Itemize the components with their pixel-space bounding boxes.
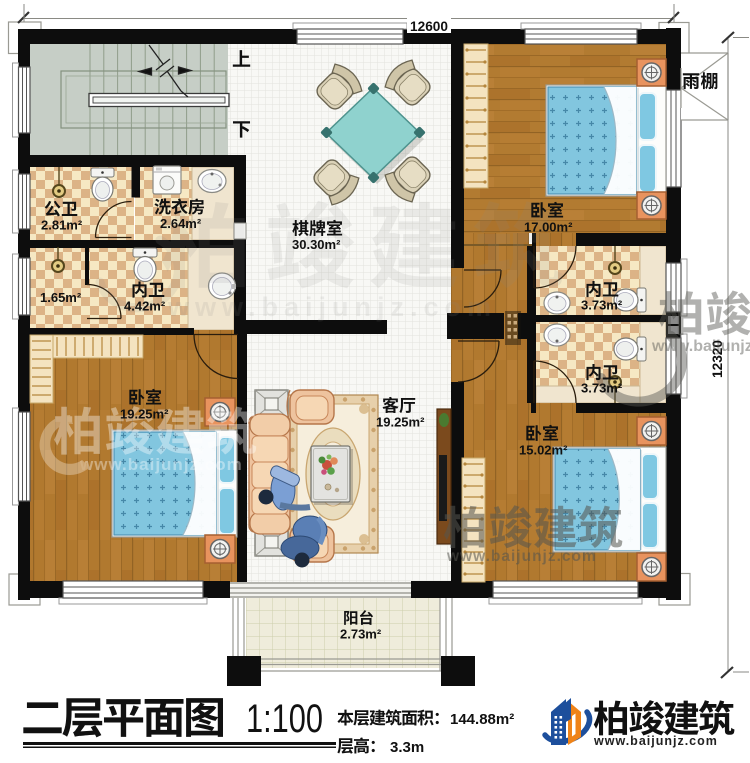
svg-text:2.73m²: 2.73m² [340,627,382,642]
svg-text:1.65m²: 1.65m² [40,290,82,305]
svg-text:www.baijunjz.com: www.baijunjz.com [593,734,718,748]
svg-text:19.25m²: 19.25m² [376,415,425,430]
svg-text:3.3m: 3.3m [390,739,424,756]
svg-text:1:100: 1:100 [246,697,323,741]
svg-text:19.25m²: 19.25m² [120,407,169,422]
svg-text:12600: 12600 [410,18,448,34]
svg-text:www.baijunjz.com: www.baijunjz.com [651,338,750,355]
svg-text:17.00m²: 17.00m² [524,220,573,235]
svg-text:2.81m²: 2.81m² [41,218,83,233]
svg-text:4.42m²: 4.42m² [124,299,166,314]
svg-text:www.baijunjz.com: www.baijunjz.com [446,548,597,565]
svg-text:www.baijunjz.com: www.baijunjz.com [79,455,243,474]
svg-text:2.64m²: 2.64m² [160,216,202,231]
svg-text:144.88m²: 144.88m² [450,711,514,728]
svg-text:3.73m²: 3.73m² [581,381,623,396]
svg-text:15.02m²: 15.02m² [519,443,568,458]
svg-text:www.baijunjz.com: www.baijunjz.com [167,292,497,322]
svg-text:3.73m²: 3.73m² [581,298,623,313]
svg-text:30.30m²: 30.30m² [292,237,341,252]
